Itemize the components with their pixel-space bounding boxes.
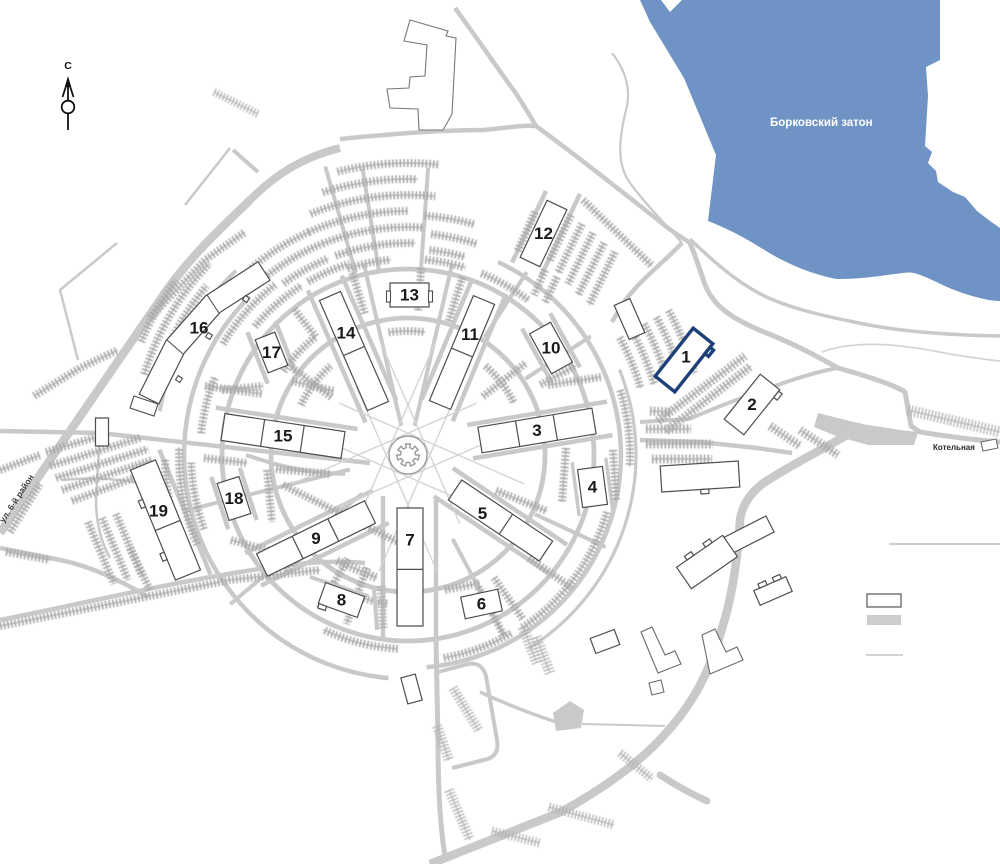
svg-text:12: 12 — [534, 224, 553, 243]
svg-text:7: 7 — [405, 531, 414, 550]
svg-text:16: 16 — [190, 319, 209, 338]
svg-text:17: 17 — [262, 343, 281, 362]
svg-text:13: 13 — [400, 286, 419, 305]
svg-text:15: 15 — [274, 427, 293, 446]
svg-text:2: 2 — [747, 395, 756, 414]
svg-text:3: 3 — [532, 421, 541, 440]
svg-text:5: 5 — [478, 504, 487, 523]
svg-text:19: 19 — [149, 502, 168, 521]
svg-text:1: 1 — [681, 348, 690, 367]
svg-text:14: 14 — [337, 324, 356, 343]
svg-text:10: 10 — [542, 339, 561, 358]
svg-text:6: 6 — [477, 595, 486, 614]
svg-text:С: С — [64, 60, 72, 72]
svg-text:8: 8 — [337, 591, 346, 610]
svg-text:18: 18 — [225, 489, 244, 508]
svg-text:11: 11 — [461, 325, 479, 344]
svg-text:9: 9 — [311, 529, 320, 548]
svg-text:Котельная: Котельная — [933, 443, 975, 452]
svg-text:Борковский затон: Борковский затон — [770, 117, 873, 129]
svg-text:4: 4 — [588, 478, 598, 497]
